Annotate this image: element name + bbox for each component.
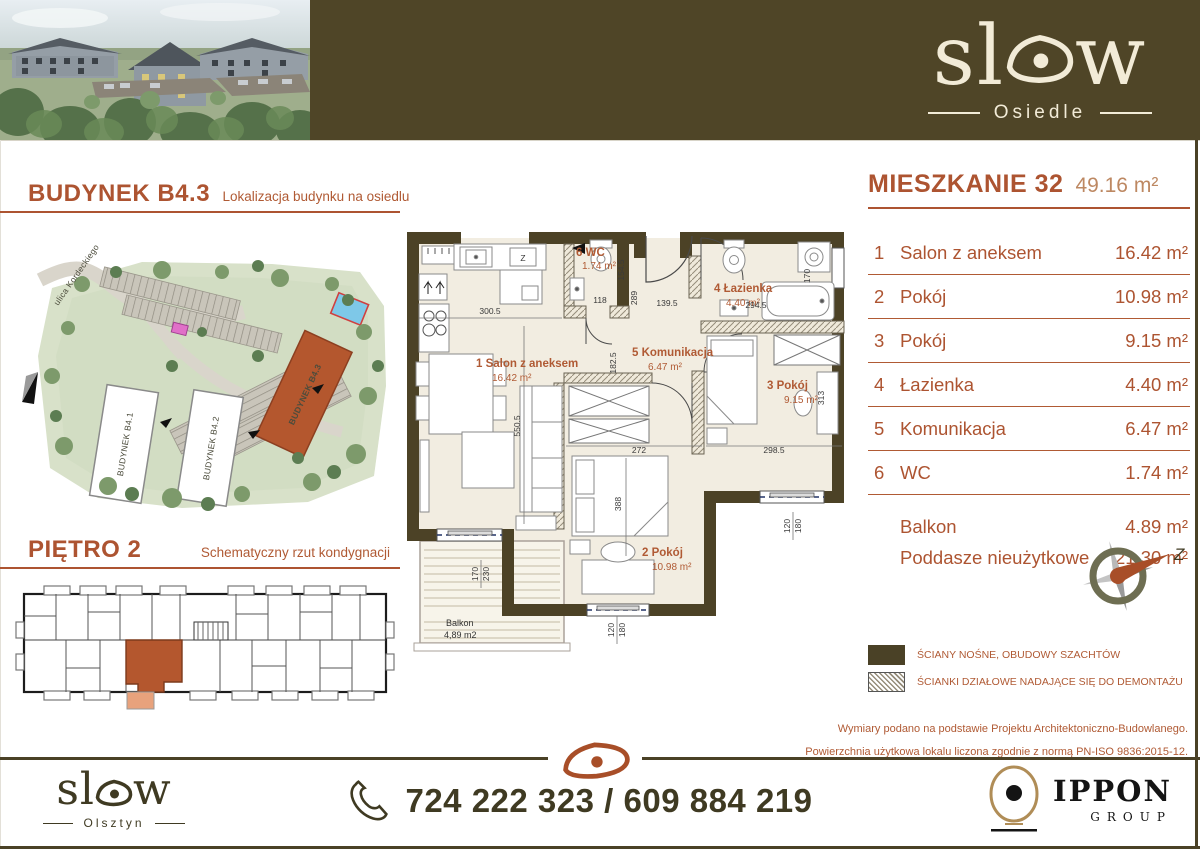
footer-logo-w: w [133,764,172,815]
floor-title: PIĘTRO 2 [28,536,141,563]
ippon-logo: IPPON GROUP [985,763,1172,835]
plan-legend: ŚCIANY NOŚNE, OBUDOWY SZACHTÓWŚCIANKI DZ… [868,645,1190,699]
compass: Z [1082,538,1186,619]
footer-logo-word: slw [24,766,204,814]
floor-header: PIĘTRO 2 Schematyczny rzut kondygnacji [28,536,390,564]
room-area: 9.15 m² [1125,330,1188,352]
floor-schematic [14,582,398,747]
room-area: 16.42 m² [1115,242,1188,264]
phone-numbers: 724 222 323 / 609 884 219 [405,782,812,820]
page-border-right [1195,140,1198,846]
building-subtitle: Lokalizacja budynku na osiedlu [223,189,410,204]
logo-subtitle-text: Osiedle [994,102,1086,124]
unit-header-rule [868,207,1190,209]
svg-text:298.5: 298.5 [763,445,785,455]
legend-swatch-icon [868,672,905,692]
room-number: 2 [874,286,900,308]
legend-item: ŚCIANY NOŚNE, OBUDOWY SZACHTÓW [868,645,1190,665]
room-name: WC [900,462,1125,484]
ippon-group: GROUP [1053,810,1172,824]
svg-text:2 Pokój: 2 Pokój [642,547,683,559]
svg-text:139.5: 139.5 [656,298,678,308]
floor-schematic-art [14,582,398,742]
room-area: 6.47 m² [1125,418,1188,440]
slow-olsztyn-logo: slw Olsztyn [24,766,204,830]
svg-text:5 Komunikacja: 5 Komunikacja [632,347,714,359]
svg-text:289: 289 [629,291,639,305]
room-name: Komunikacja [900,418,1125,440]
balcony [414,541,570,651]
svg-text:6 WC: 6 WC [576,247,605,259]
legend-label: ŚCIANKI DZIAŁOWE NADAJĄCE SIĘ DO DEMONTA… [917,676,1183,688]
footer-dash-right [155,823,185,824]
legend-item: ŚCIANKI DZIAŁOWE NADAJĄCE SIĘ DO DEMONTA… [868,672,1190,692]
flyer-page: slw Osiedle BUDYNEK B4.3 Lokalizacja bud… [0,0,1200,849]
room-name: Łazienka [900,374,1125,396]
room-row: 6WC1.74 m² [868,451,1190,495]
svg-text:182.5: 182.5 [608,352,618,374]
svg-text:180: 180 [793,519,803,533]
svg-text:294.5: 294.5 [745,300,767,310]
room-name: Salon z aneksem [900,242,1115,264]
svg-text:120: 120 [606,623,616,637]
logo-text-w: w [1075,9,1147,104]
svg-text:118: 118 [593,295,607,305]
footer-city: Olsztyn [83,816,144,830]
room-row: 4Łazienka4.40 m² [868,363,1190,407]
svg-text:272: 272 [632,445,646,455]
aerial-photo-art [0,0,310,140]
phone-block: 724 222 323 / 609 884 219 [340,779,820,823]
unit-total-area: 49.16 m² [1075,174,1158,198]
footer-logo-sub: Olsztyn [24,816,204,830]
svg-text:16.42 m²: 16.42 m² [492,373,532,384]
svg-text:Z: Z [520,253,525,263]
room-row: 1Salon z aneksem16.42 m² [868,231,1190,275]
logo-text-sl: sl [933,9,1005,104]
svg-text:550.5: 550.5 [512,415,522,437]
compass-z-label: Z [1173,545,1185,564]
top-banner: slw Osiedle [0,0,1200,140]
room-number: 5 [874,418,900,440]
room-area: 4.40 m² [1125,374,1188,396]
eye-o-icon [1005,30,1075,88]
legend-swatch-icon [868,645,905,665]
room-row: 3Pokój9.15 m² [868,319,1190,363]
room-number: 4 [874,374,900,396]
extra-area: 4.89 m² [1125,516,1188,538]
room-name: Pokój [900,286,1115,308]
slow-logo-word: slw [890,14,1190,100]
svg-text:388: 388 [613,497,623,511]
room-area: 10.98 m² [1115,286,1188,308]
svg-text:4,89 m2: 4,89 m2 [444,630,477,640]
slow-osiedle-logo: slw Osiedle [890,14,1190,124]
svg-text:1.74 m²: 1.74 m² [582,261,617,272]
ippon-circle-icon [985,763,1043,835]
disclaimer-line: Powierzchnia użytkowa lokalu liczona zgo… [660,741,1188,764]
svg-text:313: 313 [816,391,826,405]
legend-label: ŚCIANY NOŚNE, OBUDOWY SZACHTÓW [917,649,1120,661]
footer-rule-right [642,757,1200,760]
room-list: 1Salon z aneksem16.42 m²2Pokój10.98 m²3P… [868,231,1190,495]
dash-left [928,112,980,114]
room-number: 1 [874,242,900,264]
room-row: 5Komunikacja6.47 m² [868,407,1190,451]
apartment-plan-art: Z [404,226,846,662]
floor-header-rule [0,567,400,569]
floor-subtitle: Schematyczny rzut kondygnacji [201,545,390,560]
svg-text:3 Pokój: 3 Pokój [767,380,808,392]
highlighted-unit-balcony [127,692,154,709]
extra-name: Balkon [900,516,1125,538]
unit-header: MIESZKANIE 32 49.16 m² [868,170,1190,199]
compass-art: Z [1082,538,1186,614]
logo-subtitle: Osiedle [890,102,1190,124]
svg-text:9.15 m²: 9.15 m² [784,395,819,406]
aerial-photo [0,0,310,140]
svg-text:Balkon: Balkon [446,618,474,628]
extra-row: Balkon4.89 m² [868,509,1190,540]
footer-dash-left [43,823,73,824]
footer-rule-left [0,757,548,760]
unit-title: MIESZKANIE 32 [868,170,1063,199]
phone-icon [347,779,389,823]
svg-text:230: 230 [481,567,491,581]
disclaimer-line: Wymiary podano na podstawie Projektu Arc… [660,718,1188,741]
ippon-name: IPPON [1053,774,1172,808]
room2-furniture [570,456,668,594]
room-number: 6 [874,462,900,484]
room-row: 2Pokój10.98 m² [868,275,1190,319]
building-header-rule [0,211,400,213]
room-name: Pokój [900,330,1125,352]
footer-logo-sl: sl [56,764,95,815]
room-number: 3 [874,330,900,352]
building-header: BUDYNEK B4.3 Lokalizacja budynku na osie… [28,180,418,208]
svg-text:154.5: 154.5 [616,259,626,281]
apartment-plan: Z [404,226,846,667]
dash-right [1100,112,1152,114]
unit-panel: MIESZKANIE 32 49.16 m² 1Salon z aneksem1… [868,170,1190,571]
site-map: BUDYNEK B4.1 BUDYNEK B4.2 ­ BUDYNEK B4.3 [12,236,408,537]
svg-text:6.47 m²: 6.47 m² [648,362,683,373]
svg-text:300.5: 300.5 [479,306,501,316]
svg-text:180: 180 [617,623,627,637]
svg-text:120: 120 [782,519,792,533]
svg-text:10.98 m²: 10.98 m² [652,562,692,573]
footer-eye-o-icon [95,778,133,808]
building-title: BUDYNEK B4.3 [28,180,210,207]
banner-divider [0,140,1200,141]
page-border-left [0,140,1,846]
room-area: 1.74 m² [1125,462,1188,484]
site-map-art: BUDYNEK B4.1 BUDYNEK B4.2 ­ BUDYNEK B4.3 [12,236,408,532]
svg-text:1 Salon z aneksem: 1 Salon z aneksem [476,358,578,370]
ippon-text: IPPON GROUP [1053,774,1172,824]
svg-text:4 Łazienka: 4 Łazienka [714,283,773,295]
svg-text:170: 170 [802,269,812,283]
svg-text:170: 170 [470,567,480,581]
